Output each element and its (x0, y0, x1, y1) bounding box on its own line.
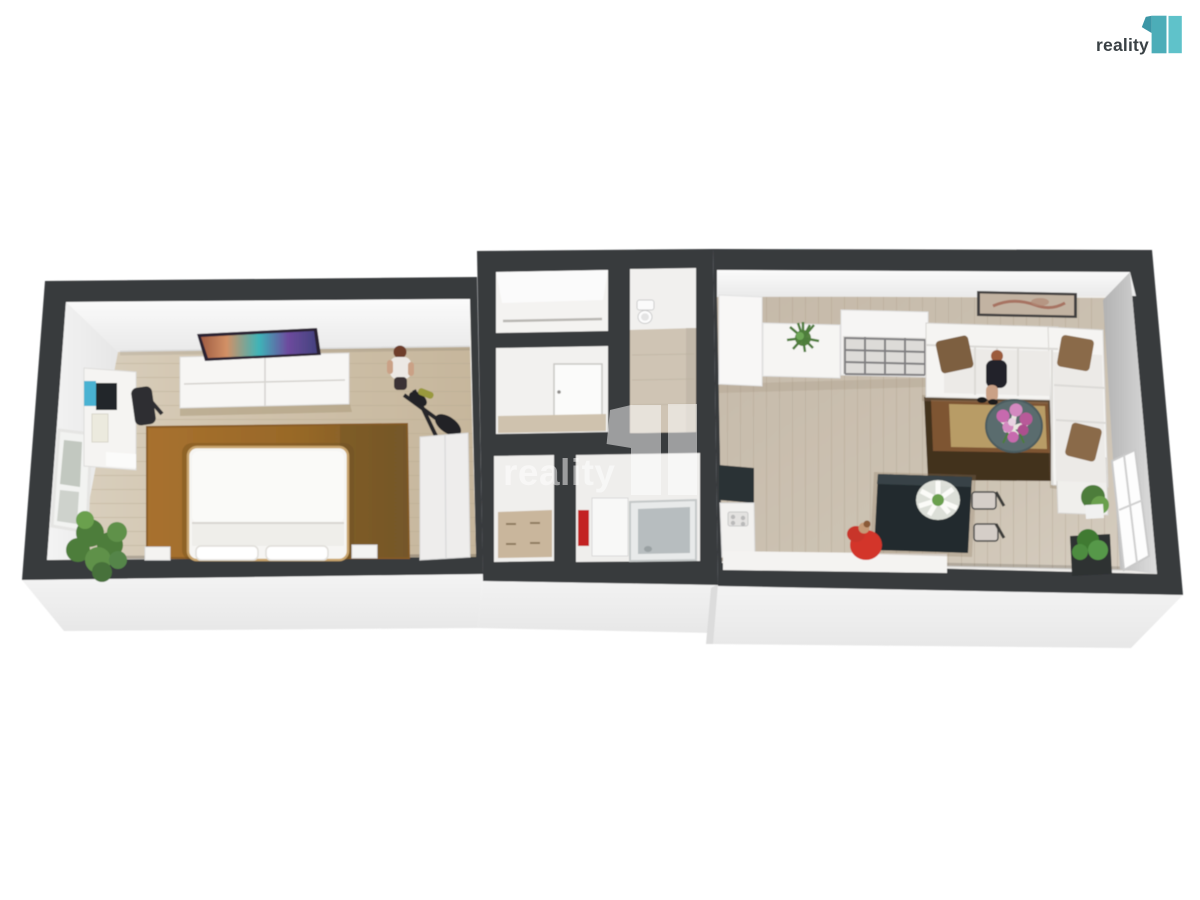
svg-text:reality: reality (1096, 35, 1149, 55)
svg-text:reality: reality (503, 452, 616, 493)
